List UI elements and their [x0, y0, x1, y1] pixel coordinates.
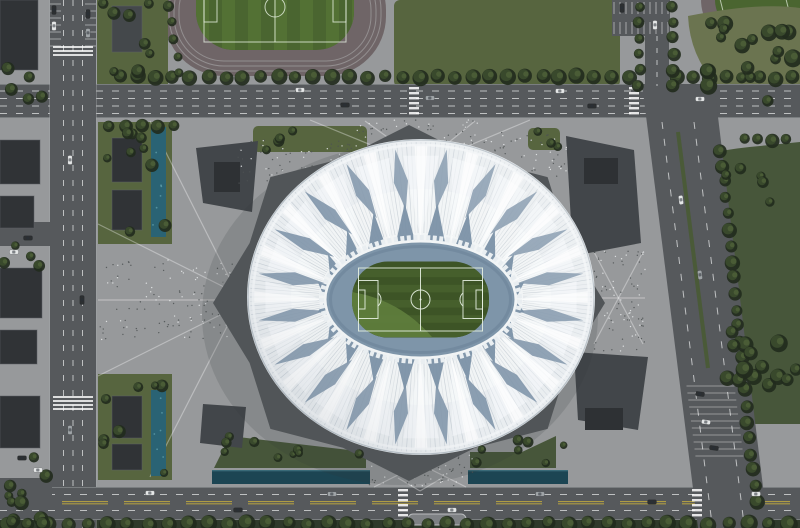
car: [701, 419, 711, 425]
tree: [635, 2, 645, 12]
tree: [221, 438, 232, 449]
tree: [4, 480, 16, 492]
tree: [103, 121, 114, 132]
aerial-render: [0, 0, 800, 528]
car: [448, 508, 457, 512]
tree: [666, 64, 680, 78]
car: [588, 104, 597, 108]
west-canal-south: [151, 390, 166, 476]
car: [52, 22, 56, 31]
tree: [604, 70, 618, 84]
tree: [744, 346, 758, 360]
tree: [741, 400, 754, 413]
tree: [471, 457, 481, 467]
tree: [700, 77, 717, 94]
tree: [713, 144, 727, 158]
tree: [136, 132, 147, 143]
tree: [139, 144, 148, 153]
car: [341, 103, 350, 107]
tree: [167, 17, 176, 26]
tree: [723, 208, 734, 219]
car: [18, 456, 27, 460]
tree: [288, 126, 297, 135]
car: [86, 29, 90, 38]
tree: [727, 270, 741, 284]
building: [0, 396, 40, 448]
tree: [295, 449, 303, 457]
tree: [107, 7, 120, 20]
building: [0, 140, 40, 184]
tree: [131, 64, 145, 78]
tree: [254, 70, 267, 83]
tree: [633, 17, 645, 29]
tree: [765, 197, 774, 206]
tree: [33, 260, 45, 272]
tree: [113, 425, 126, 438]
tree: [145, 159, 158, 172]
tree: [768, 72, 784, 88]
tree: [757, 176, 769, 188]
tree: [587, 70, 601, 84]
tree: [752, 134, 763, 145]
tree: [11, 241, 20, 250]
tree: [5, 83, 18, 96]
tree: [731, 305, 742, 316]
tree: [271, 69, 287, 85]
tree: [722, 223, 737, 238]
car: [10, 250, 19, 254]
tree: [482, 69, 497, 84]
tree: [551, 69, 567, 85]
tree: [781, 134, 792, 145]
tree: [168, 34, 178, 44]
tree: [125, 226, 135, 236]
tree: [720, 192, 731, 203]
tree: [741, 61, 755, 75]
tree: [635, 64, 646, 75]
tree: [151, 120, 165, 134]
car: [146, 491, 155, 495]
tree: [632, 80, 644, 92]
tree: [174, 53, 183, 62]
car: [653, 21, 657, 30]
tree: [634, 49, 644, 59]
tree: [151, 382, 159, 390]
tree: [518, 69, 532, 83]
tree: [666, 1, 678, 13]
tree: [537, 69, 551, 83]
tree: [220, 71, 234, 85]
tree: [324, 69, 340, 85]
car: [696, 97, 705, 101]
car: [752, 492, 761, 496]
tree: [98, 439, 108, 449]
tree: [262, 145, 271, 154]
tree: [765, 134, 779, 148]
tree: [726, 326, 739, 339]
tree: [686, 71, 699, 84]
car: [536, 492, 545, 496]
tree: [735, 163, 746, 174]
football-pitch: [352, 262, 489, 339]
building: [112, 138, 142, 182]
tree: [448, 71, 462, 85]
tree: [174, 68, 183, 77]
tree: [123, 9, 136, 22]
tree: [29, 452, 39, 462]
car: [80, 296, 84, 305]
tree: [342, 69, 358, 85]
tree: [135, 119, 148, 132]
tree: [139, 38, 151, 50]
tree: [725, 241, 737, 253]
tree: [568, 68, 584, 84]
tree: [274, 453, 283, 462]
tree: [379, 70, 391, 82]
tree: [721, 170, 731, 180]
tree: [397, 71, 410, 84]
tree: [750, 480, 762, 492]
tree: [305, 69, 321, 85]
tree: [160, 469, 168, 477]
tree: [666, 31, 678, 43]
tree: [700, 63, 716, 79]
tree: [762, 95, 773, 106]
car: [68, 426, 72, 435]
tree: [36, 91, 48, 103]
tree: [705, 17, 717, 29]
tree: [668, 17, 679, 28]
athletics-track: [164, 0, 386, 76]
tree: [666, 79, 679, 92]
tree: [6, 516, 19, 528]
tree: [148, 70, 164, 86]
tree: [221, 448, 229, 456]
tree: [773, 46, 785, 58]
tree: [727, 339, 740, 352]
car: [426, 96, 435, 100]
tree: [534, 127, 543, 136]
tree: [103, 154, 112, 163]
car: [556, 89, 565, 93]
tree: [523, 437, 534, 448]
tree: [360, 71, 375, 86]
car: [697, 270, 702, 279]
tree: [109, 67, 118, 76]
car: [648, 500, 657, 504]
tree: [14, 496, 29, 511]
car: [296, 88, 305, 92]
tree: [736, 361, 754, 379]
tree: [740, 416, 755, 431]
tree: [774, 24, 790, 40]
tree: [23, 93, 35, 105]
tree: [634, 34, 644, 44]
tree: [750, 494, 765, 509]
tree: [781, 374, 793, 386]
tree: [500, 69, 516, 85]
car: [52, 6, 56, 15]
tree: [126, 148, 136, 158]
building: [0, 0, 38, 70]
car: [86, 10, 90, 19]
car: [328, 492, 337, 496]
tree: [26, 252, 36, 262]
scene-svg: [0, 0, 800, 528]
tree: [734, 38, 749, 53]
car: [620, 4, 624, 13]
tree: [1, 62, 14, 75]
south-pool-east: [468, 470, 568, 484]
building: [112, 190, 142, 230]
building: [0, 196, 34, 228]
tree: [202, 70, 217, 85]
tree: [275, 134, 285, 144]
tree: [355, 449, 364, 458]
tree: [24, 71, 35, 82]
tree: [720, 70, 734, 84]
tree: [466, 69, 481, 84]
tree: [546, 138, 556, 148]
tree: [234, 70, 249, 85]
tree: [744, 449, 757, 462]
tree: [743, 431, 756, 444]
tree: [133, 382, 143, 392]
car: [234, 508, 243, 512]
tree: [163, 1, 174, 12]
car: [34, 468, 43, 472]
tree: [728, 287, 741, 300]
car: [678, 195, 683, 204]
building: [0, 268, 42, 318]
tree: [542, 459, 550, 467]
tree: [770, 334, 788, 352]
tree: [122, 128, 134, 140]
tree: [169, 120, 180, 131]
tree: [412, 70, 428, 86]
tree: [513, 435, 524, 446]
tree: [560, 441, 568, 449]
tree: [725, 255, 740, 270]
tree: [431, 69, 445, 83]
car: [695, 391, 705, 397]
tree: [249, 437, 259, 447]
tree: [514, 446, 523, 455]
building: [0, 330, 37, 364]
tree: [785, 70, 799, 84]
car: [68, 156, 72, 165]
tree: [145, 49, 154, 58]
car: [709, 445, 719, 451]
tree: [478, 445, 486, 453]
tree: [668, 48, 681, 61]
car: [24, 236, 33, 240]
tree: [101, 394, 111, 404]
tree: [159, 219, 172, 232]
tree: [746, 462, 761, 477]
tree: [740, 134, 750, 144]
tree: [289, 71, 301, 83]
tree: [719, 24, 730, 35]
tree: [182, 70, 197, 85]
building: [112, 444, 142, 470]
median-island: [408, 514, 466, 525]
